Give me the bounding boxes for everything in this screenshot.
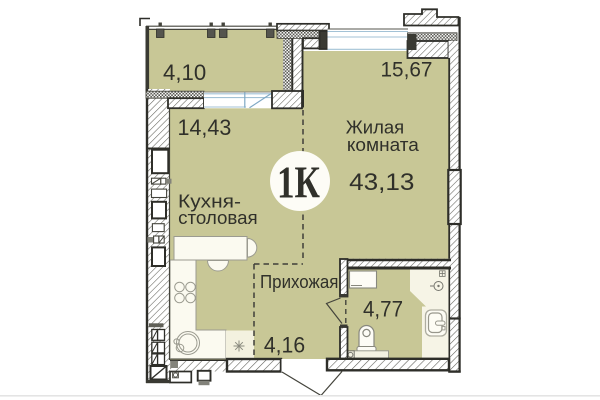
svg-text:комната: комната [347,134,420,155]
svg-text:4,10: 4,10 [163,60,206,85]
svg-text:4,16: 4,16 [264,332,305,357]
svg-text:Прихожая: Прихожая [260,271,338,292]
svg-text:1К: 1К [277,158,320,208]
svg-text:4,77: 4,77 [363,297,403,322]
svg-text:столовая: столовая [178,207,258,228]
svg-text:14,43: 14,43 [178,115,232,140]
svg-text:43,13: 43,13 [349,170,414,196]
svg-text:15,67: 15,67 [381,57,433,82]
